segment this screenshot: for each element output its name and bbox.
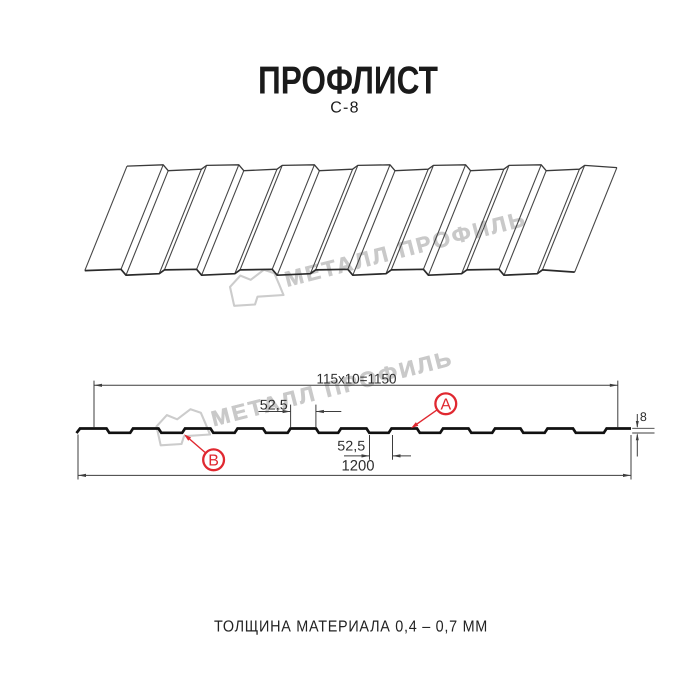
- svg-text:ТОЛЩИНА МАТЕРИАЛА 0,4 – 0,7 ММ: ТОЛЩИНА МАТЕРИАЛА 0,4 – 0,7 ММ: [214, 619, 488, 636]
- svg-text:52,5: 52,5: [337, 438, 365, 454]
- svg-text:115x10=1150: 115x10=1150: [317, 370, 397, 386]
- svg-text:B: B: [208, 453, 219, 470]
- svg-text:С-8: С-8: [330, 100, 359, 117]
- svg-text:8: 8: [640, 410, 647, 424]
- svg-text:52,5: 52,5: [260, 396, 288, 412]
- svg-text:ПРОФЛИСТ: ПРОФЛИСТ: [258, 60, 438, 103]
- svg-text:1200: 1200: [342, 457, 375, 474]
- svg-text:A: A: [440, 397, 451, 414]
